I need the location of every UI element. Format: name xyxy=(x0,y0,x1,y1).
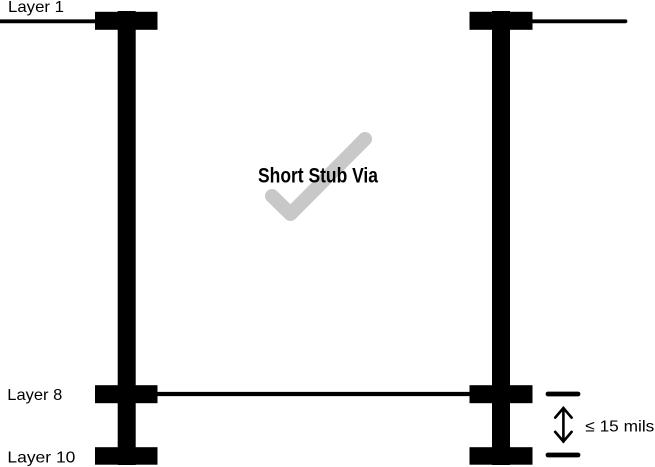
svg-text:Layer 10: Layer 10 xyxy=(7,449,75,466)
svg-text:Layer 1: Layer 1 xyxy=(8,0,64,16)
svg-text:≤ 15 mils: ≤ 15 mils xyxy=(585,419,654,436)
svg-text:Layer 8: Layer 8 xyxy=(7,387,62,404)
svg-text:Short Stub Via: Short Stub Via xyxy=(258,164,378,187)
